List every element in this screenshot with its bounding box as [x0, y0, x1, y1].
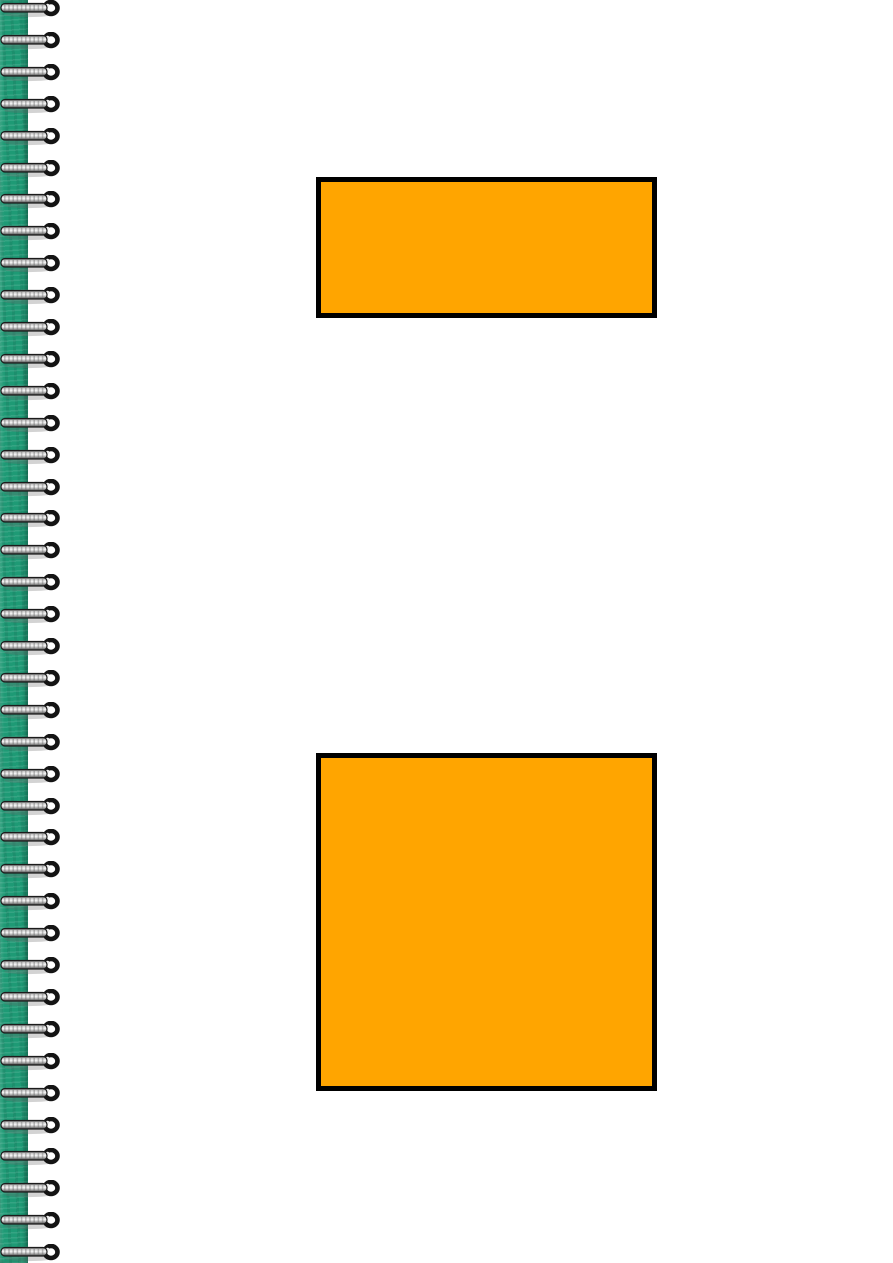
spiral-coil-icon	[0, 1021, 62, 1039]
spiral-coil-icon	[0, 861, 62, 879]
spiral-coil-icon	[0, 829, 62, 847]
spiral-coil-icon	[0, 223, 62, 241]
spiral-coil-icon	[0, 479, 62, 497]
spiral-coil-icon	[0, 32, 62, 50]
spiral-coil-icon	[0, 542, 62, 560]
spiral-coil-icon	[0, 1244, 62, 1262]
spiral-coil-icon	[0, 1117, 62, 1135]
orange-rectangle-shape	[316, 177, 657, 318]
notebook-page	[0, 0, 893, 1263]
spiral-coil-icon	[0, 989, 62, 1007]
spiral-coil-icon	[0, 893, 62, 911]
spiral-coil-icon	[0, 0, 62, 18]
spiral-coil-icon	[0, 255, 62, 273]
spiral-binding-coils	[0, 0, 64, 1263]
spiral-coil-icon	[0, 1053, 62, 1071]
spiral-coil-icon	[0, 1148, 62, 1166]
spiral-coil-icon	[0, 574, 62, 592]
spiral-coil-icon	[0, 1212, 62, 1230]
orange-square-shape	[316, 753, 657, 1091]
spiral-coil-icon	[0, 638, 62, 656]
spiral-coil-icon	[0, 160, 62, 178]
spiral-coil-icon	[0, 766, 62, 784]
spiral-coil-icon	[0, 670, 62, 688]
spiral-coil-icon	[0, 510, 62, 528]
spiral-coil-icon	[0, 64, 62, 82]
spiral-coil-icon	[0, 128, 62, 146]
spiral-coil-icon	[0, 383, 62, 401]
spiral-coil-icon	[0, 96, 62, 114]
spiral-coil-icon	[0, 798, 62, 816]
spiral-coil-icon	[0, 191, 62, 209]
spiral-coil-icon	[0, 319, 62, 337]
spiral-coil-icon	[0, 606, 62, 624]
spiral-coil-icon	[0, 1180, 62, 1198]
spiral-coil-icon	[0, 447, 62, 465]
spiral-coil-icon	[0, 1085, 62, 1103]
spiral-coil-icon	[0, 702, 62, 720]
spiral-coil-icon	[0, 734, 62, 752]
spiral-coil-icon	[0, 351, 62, 369]
spiral-coil-icon	[0, 287, 62, 305]
spiral-coil-icon	[0, 957, 62, 975]
spiral-coil-icon	[0, 925, 62, 943]
spiral-coil-icon	[0, 415, 62, 433]
